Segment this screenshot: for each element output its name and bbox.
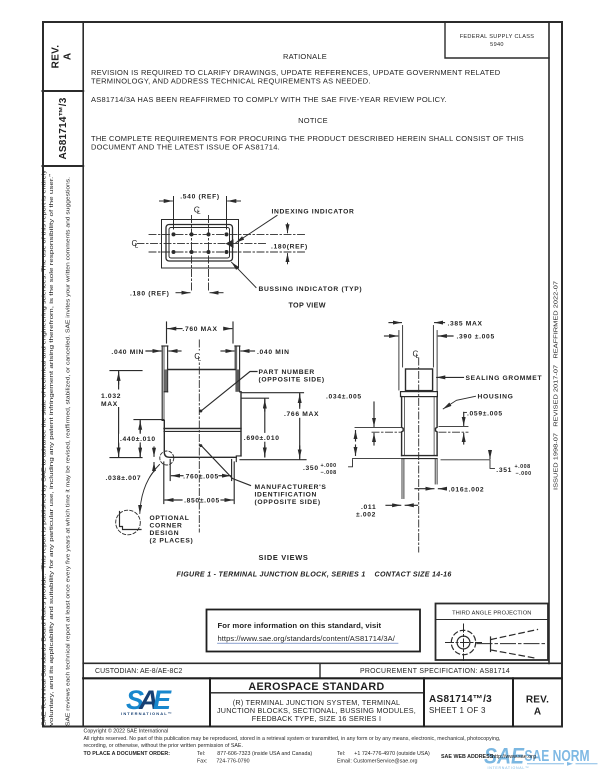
svg-text:AEROSPACE STANDARD: AEROSPACE STANDARD [248,681,384,693]
svg-text:.385 MAX: .385 MAX [448,320,483,327]
svg-text:AS81714™/3: AS81714™/3 [58,97,69,159]
svg-text:INTERNATIONAL™: INTERNATIONAL™ [121,711,173,716]
svg-text:https://www.sae.org/standards/: https://www.sae.org/standards/content/AS… [218,634,396,643]
svg-text:recording, or otherwise, witho: recording, or otherwise, without the pri… [84,743,243,749]
svg-text:L: L [135,243,139,250]
svg-text:Fax: 724-776-0790: Fax: 724-776-0790 [197,758,250,764]
svg-text:L: L [198,356,202,363]
svg-text:.040 MIN: .040 MIN [257,349,290,356]
svg-text:Tel: 877-606-7323 (insi: Tel: 877-606-7323 (inside USA and Canada… [197,751,312,757]
svg-text:SAE reviews each technical rep: SAE reviews each technical report at lea… [66,177,72,726]
svg-text:.034±.005: .034±.005 [326,393,362,400]
svg-text:Email: CustomerService@sae.org: Email: CustomerService@sae.org [337,758,417,764]
svg-text:.180 (REF): .180 (REF) [130,290,170,297]
svg-text:PART NUMBER: PART NUMBER [259,369,315,376]
svg-text:RATIONALE: RATIONALE [283,52,327,61]
svg-text:.850±.005: .850±.005 [184,498,220,505]
svg-text:CUSTODIAN: AE-8/AE-8C2: CUSTODIAN: AE-8/AE-8C2 [95,668,183,675]
svg-text:For more information on this s: For more information on this standard, v… [218,621,382,630]
svg-text:DOCUMENT AND THE LATEST ISSUE: DOCUMENT AND THE LATEST ISSUE OF AS81714… [91,143,280,152]
svg-text:THIRD ANGLE PROJECTION: THIRD ANGLE PROJECTION [452,610,531,616]
svg-text:FIGURE 1 - TERMINAL JUNCTION B: FIGURE 1 - TERMINAL JUNCTION BLOCK, SERI… [176,570,451,578]
svg-text:FEEDBACK TYPE, SIZE 16 SERIES: FEEDBACK TYPE, SIZE 16 SERIES I [252,714,381,723]
svg-text:SEALING GROMMET: SEALING GROMMET [466,375,543,382]
svg-text:SAE WEB ADDRESS:: SAE WEB ADDRESS: [441,754,495,760]
svg-text:OPTIONAL: OPTIONAL [150,515,190,522]
svg-text:HOUSING: HOUSING [478,393,514,400]
svg-text:A: A [63,53,74,60]
svg-text:(2 PLACES): (2 PLACES) [150,538,194,545]
svg-text:.760±.005: .760±.005 [183,473,219,480]
svg-text:−.008: −.008 [321,470,337,476]
svg-text:.766 MAX: .766 MAX [284,411,319,418]
svg-text:REV.: REV. [526,694,549,705]
svg-text:.540 (REF): .540 (REF) [180,193,220,200]
svg-text:TO PLACE A DOCUMENT ORDER:: TO PLACE A DOCUMENT ORDER: [84,751,171,757]
svg-text:Copyright © 2022 SAE Internati: Copyright © 2022 SAE International [84,727,169,734]
svg-text:.350: .350 [303,465,319,472]
svg-text:L: L [416,353,420,360]
svg-text:.040 MIN: .040 MIN [111,349,144,356]
svg-text:L: L [197,209,201,216]
svg-text:(OPPOSITE SIDE): (OPPOSITE SIDE) [255,499,321,506]
svg-text:ISSUED 1998-07 REVISED 2017-: ISSUED 1998-07 REVISED 2017-07 REAFFIRME… [554,281,560,490]
svg-text:+.000: +.000 [321,463,337,469]
svg-text:+.008: +.008 [515,464,531,470]
svg-text:TERMINOLOGY, AND ADDRESS TECHN: TERMINOLOGY, AND ADDRESS TECHNICAL REQUI… [91,77,371,86]
svg-text:voluntary, and its applicabili: voluntary, and its applicability and sui… [49,174,55,726]
svg-text:(OPPOSITE SIDE): (OPPOSITE SIDE) [259,376,325,383]
svg-text:MAX: MAX [101,401,118,408]
svg-text:NOTICE: NOTICE [298,116,328,125]
svg-text:.760 MAX: .760 MAX [182,326,217,333]
svg-text:.351: .351 [496,467,512,474]
svg-text:1.032: 1.032 [101,393,121,400]
svg-text:FEDERAL SUPPLY CLASS: FEDERAL SUPPLY CLASS [460,34,535,40]
svg-text:http://www.sae.org: http://www.sae.org [492,754,536,760]
svg-text:BUSSING INDICATOR (TYP): BUSSING INDICATOR (TYP) [259,286,363,293]
svg-text:TOP VIEW: TOP VIEW [289,301,326,310]
svg-text:REV.: REV. [51,45,62,69]
svg-text:IDENTIFICATION: IDENTIFICATION [255,492,318,499]
svg-text:5940: 5940 [490,42,504,48]
svg-text:±.002: ±.002 [356,512,376,519]
svg-text:.016±.002: .016±.002 [449,486,485,493]
svg-text:CORNER: CORNER [150,523,183,530]
svg-text:.011: .011 [361,504,376,511]
svg-text:MANUFACTURER'S: MANUFACTURER'S [255,484,327,491]
svg-text:Tel: +1 724-776-4970 (out: Tel: +1 724-776-4970 (outside USA) [337,751,430,757]
svg-text:INTERNATIONAL™: INTERNATIONAL™ [488,766,530,770]
svg-text:.059±.005: .059±.005 [467,410,503,417]
svg-text:INDEXING INDICATOR: INDEXING INDICATOR [272,209,355,216]
svg-text:DESIGN: DESIGN [150,530,180,537]
svg-text:PROCUREMENT SPECIFICATION: AS: PROCUREMENT SPECIFICATION: AS81714 [360,668,510,675]
svg-text:.180(REF): .180(REF) [271,244,308,251]
svg-text:.690±.010: .690±.010 [244,435,280,442]
svg-text:AS81714™/3: AS81714™/3 [429,694,492,705]
svg-text:.390 ±.005: .390 ±.005 [457,334,495,341]
svg-text:AS81714/3A HAS BEEN REAFFIRMED: AS81714/3A HAS BEEN REAFFIRMED TO COMPLY… [91,95,447,104]
svg-text:SAE Technical Standards Board: SAE Technical Standards Board Rules prov… [42,169,48,726]
svg-text:All rights reserved. No part o: All rights reserved. No part of this pub… [84,736,501,742]
svg-text:.038±.007: .038±.007 [106,475,142,482]
svg-text:−.000: −.000 [516,471,532,477]
svg-text:SIDE VIEWS: SIDE VIEWS [258,553,308,562]
svg-text:.440±.010: .440±.010 [120,436,156,443]
svg-text:SHEET 1 OF 3: SHEET 1 OF 3 [429,706,486,715]
svg-text:A: A [534,706,541,717]
